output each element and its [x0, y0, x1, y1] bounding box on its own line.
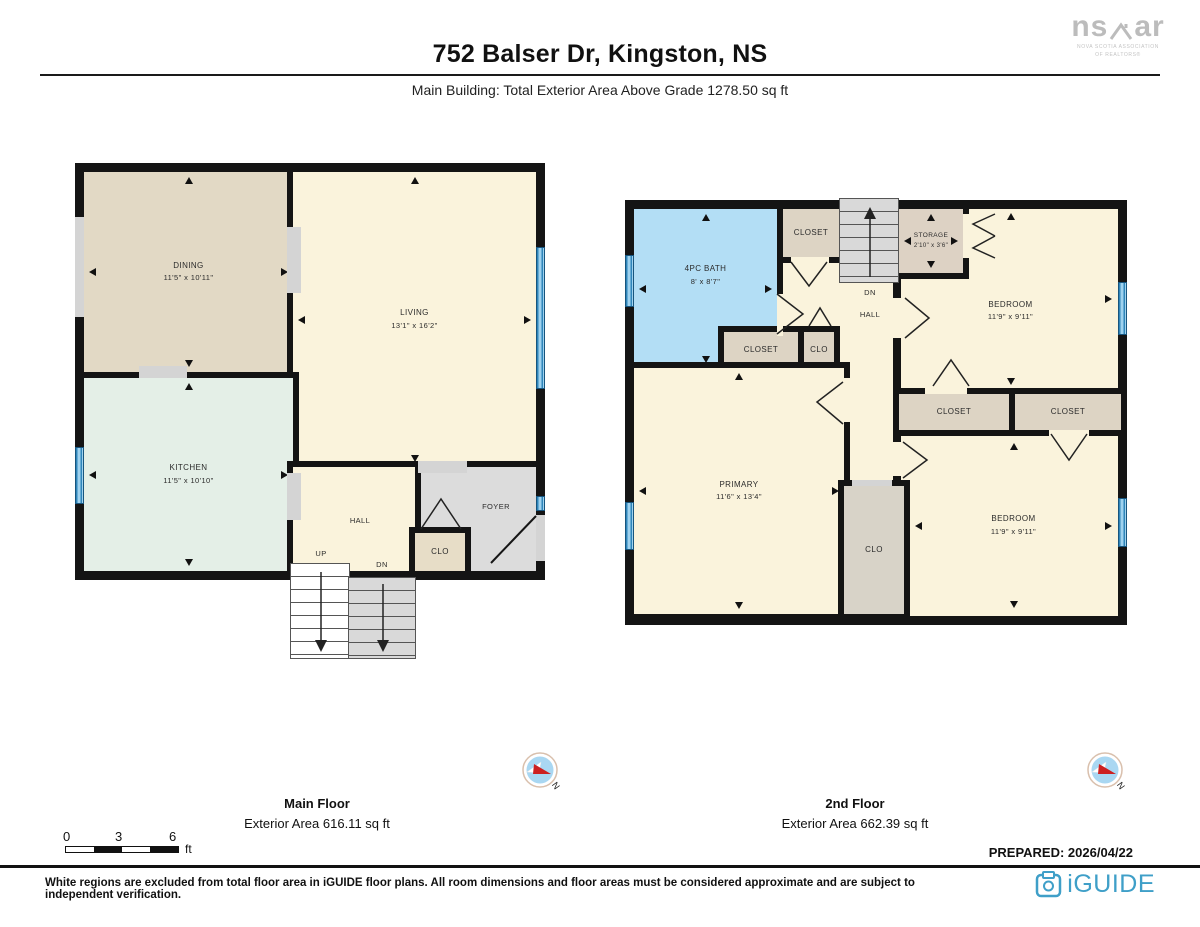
stairs-direction-arrow [291, 564, 351, 660]
nsar-text-right: ar [1134, 12, 1164, 42]
measure-arrow-up [185, 383, 193, 390]
scale-tick-6: 6 [169, 829, 176, 844]
door-swing [971, 212, 997, 260]
nsar-logo: ns ar NOVA SCOTIA ASSOCIATION OF REALTOR… [1058, 12, 1178, 59]
room-name: LIVING [391, 306, 437, 320]
measure-arrow-up [185, 177, 193, 184]
compass-icon: N [1085, 750, 1129, 794]
door-swing [1049, 432, 1089, 462]
door-opening [75, 217, 84, 317]
room-label-hall: HALL [841, 310, 899, 319]
measure-arrow-right [951, 237, 958, 245]
stairs-direction-arrow [349, 578, 417, 660]
measure-arrow-up [927, 214, 935, 221]
floor-name: 2nd Floor [717, 794, 993, 814]
room-label: CLOSET [744, 343, 778, 357]
page-title: 752 Balser Dr, Kingston, NS [0, 40, 1200, 69]
door-swing [815, 380, 845, 426]
header-divider [40, 74, 1160, 76]
floor-area: Exterior Area 616.11 sq ft [244, 816, 390, 831]
scale-tick-3: 3 [115, 829, 122, 844]
room-dims: 8' x 8'7" [685, 276, 727, 289]
measure-arrow-left [915, 522, 922, 530]
measure-arrow-left [298, 316, 305, 324]
window [536, 247, 545, 389]
compass-icon: N [520, 750, 564, 794]
door-opening [893, 442, 901, 476]
room-dims: 11'9" x 9'11" [988, 311, 1033, 324]
room-name: BEDROOM [988, 298, 1033, 312]
main-floor-caption: Main Floor Exterior Area 616.11 sq ft [179, 794, 455, 834]
window [625, 255, 634, 307]
door-opening [139, 366, 187, 378]
room-dims: 11'5" x 10'10" [163, 475, 213, 488]
iguide-camera-icon [1035, 871, 1062, 898]
iguide-logo: iGUIDE [1035, 870, 1155, 899]
room-clo-bottom: CLO [838, 480, 910, 620]
room-name: CLOSET [794, 226, 828, 240]
room-label: CLOSET [1051, 405, 1085, 419]
stairs-down-label: DN [367, 560, 397, 569]
measure-arrow-down [1010, 601, 1018, 608]
window [1118, 498, 1127, 547]
measure-arrow-left [639, 285, 646, 293]
door-opening [418, 461, 467, 473]
measure-arrow-up [1007, 213, 1015, 220]
disclaimer-text: White regions are excluded from total fl… [45, 877, 945, 901]
door-swing [807, 306, 833, 328]
scale-bar-strip [65, 846, 179, 853]
measure-arrow-left [904, 237, 911, 245]
measure-arrow-down [927, 261, 935, 268]
nsar-wordmark: ns ar [1058, 12, 1178, 42]
room-label: CLOSET [937, 405, 971, 419]
room-dims: 11'6" x 13'4" [716, 491, 762, 504]
door-opening [287, 473, 301, 520]
measure-arrow-up [735, 373, 743, 380]
measure-arrow-down [735, 602, 743, 609]
floor-area: Exterior Area 662.39 sq ft [782, 816, 929, 831]
window [625, 502, 634, 550]
iguide-wordmark: iGUIDE [1067, 870, 1155, 899]
measure-arrow-up [702, 214, 710, 221]
measure-arrow-left [89, 471, 96, 479]
measure-arrow-right [1105, 295, 1112, 303]
scale-tick-0: 0 [63, 829, 70, 844]
measure-arrow-up [411, 177, 419, 184]
room-dims: 2'10" x 3'6" [914, 241, 948, 251]
measure-arrow-left [639, 487, 646, 495]
room-closet-top: CLOSET [777, 203, 845, 263]
measure-arrow-right [1105, 522, 1112, 530]
room-closet-main: CLO [409, 527, 471, 577]
room-label-hall: HALL [330, 516, 390, 525]
door-swing [789, 260, 829, 288]
room-label: 4PC BATH 8' x 8'7" [685, 262, 727, 288]
measure-arrow-left [89, 268, 96, 276]
room-label: CLO [865, 543, 883, 557]
second-floor-caption: 2nd Floor Exterior Area 662.39 sq ft [717, 794, 993, 834]
room-label: PRIMARY 11'6" x 13'4" [716, 478, 762, 504]
room-label: BEDROOM 11'9" x 9'11" [988, 298, 1033, 324]
door-opening [287, 227, 301, 293]
door-swing [903, 296, 931, 340]
room-dims: 11'9" x 9'11" [991, 526, 1036, 539]
stairs-direction-arrow [840, 199, 900, 284]
room-label: CLOSET [794, 226, 828, 240]
room-bedroom-bottom: BEDROOM 11'9" x 9'11" [910, 438, 1117, 613]
prepared-date: PREPARED: 2026/04/22 [989, 845, 1133, 860]
room-kitchen: KITCHEN 11'5" x 10'10" [78, 372, 299, 577]
room-name: CLOSET [744, 343, 778, 357]
door-swing [931, 358, 971, 388]
stairs-up [290, 563, 350, 659]
window [1118, 282, 1127, 335]
room-storage: STORAGE 2'10" x 3'6" [893, 203, 969, 279]
entry-door-opening [536, 515, 545, 561]
room-closet-left: CLOSET [893, 388, 1015, 436]
door-swing [419, 497, 463, 531]
window [75, 447, 84, 504]
stairs-down-label: DN [841, 288, 899, 297]
scale-unit: ft [185, 842, 192, 856]
room-label: STORAGE 2'10" x 3'6" [914, 230, 948, 251]
floor-plan-second: BEDROOM 11'9" x 9'11" BEDROOM 11'9" x 9'… [625, 198, 1127, 627]
door-opening [963, 214, 969, 258]
room-name: BEDROOM [991, 512, 1036, 526]
nsar-caption-line1: NOVA SCOTIA ASSOCIATION [1077, 44, 1159, 50]
room-dining: DINING 11'5" x 10'11" [78, 166, 299, 378]
room-name: CLO [810, 343, 828, 357]
stairs-up-label: UP [306, 549, 336, 558]
room-name: DINING [164, 259, 214, 273]
room-label: BEDROOM 11'9" x 9'11" [991, 512, 1036, 538]
door-swing [775, 292, 805, 336]
footer-divider [0, 865, 1200, 868]
door-opening [925, 388, 967, 394]
room-label: CLO [810, 343, 828, 357]
room-dims: 11'5" x 10'11" [164, 272, 214, 285]
window [536, 496, 545, 511]
entry-door-leaf [489, 515, 537, 565]
floor-name: Main Floor [179, 794, 455, 814]
room-living: LIVING 13'1" x 16'2" [287, 166, 542, 473]
room-label-foyer: FOYER [466, 502, 526, 511]
room-name: CLOSET [1051, 405, 1085, 419]
room-name: 4PC BATH [685, 262, 727, 276]
room-name: CLO [431, 545, 449, 559]
room-name: PRIMARY [716, 478, 762, 492]
room-label: KITCHEN 11'5" x 10'10" [163, 461, 213, 487]
room-name: CLO [865, 543, 883, 557]
stairs-second-floor [839, 198, 899, 283]
room-label: LIVING 13'1" x 16'2" [391, 306, 437, 332]
room-name: KITCHEN [163, 461, 213, 475]
nsar-caption-line2: OF REALTORS® [1095, 52, 1141, 58]
nsar-roof-icon [1109, 18, 1133, 42]
room-name: CLOSET [937, 405, 971, 419]
measure-arrow-right [765, 285, 772, 293]
measure-arrow-down [185, 559, 193, 566]
door-opening [852, 480, 892, 486]
room-name: STORAGE [914, 230, 948, 241]
page-subtitle: Main Building: Total Exterior Area Above… [0, 82, 1200, 98]
nsar-text-left: ns [1071, 12, 1108, 42]
room-closet-right: CLOSET [1009, 388, 1127, 436]
measure-arrow-up [1010, 443, 1018, 450]
room-label: DINING 11'5" x 10'11" [164, 259, 214, 285]
room-label: CLO [431, 545, 449, 559]
measure-arrow-right [524, 316, 531, 324]
room-dims: 13'1" x 16'2" [391, 320, 437, 333]
door-swing [901, 440, 929, 480]
stairs-down [348, 577, 416, 659]
floor-plan-main: DINING 11'5" x 10'11" LIVING 13'1" x 16'… [75, 163, 545, 663]
measure-arrow-down [1007, 378, 1015, 385]
